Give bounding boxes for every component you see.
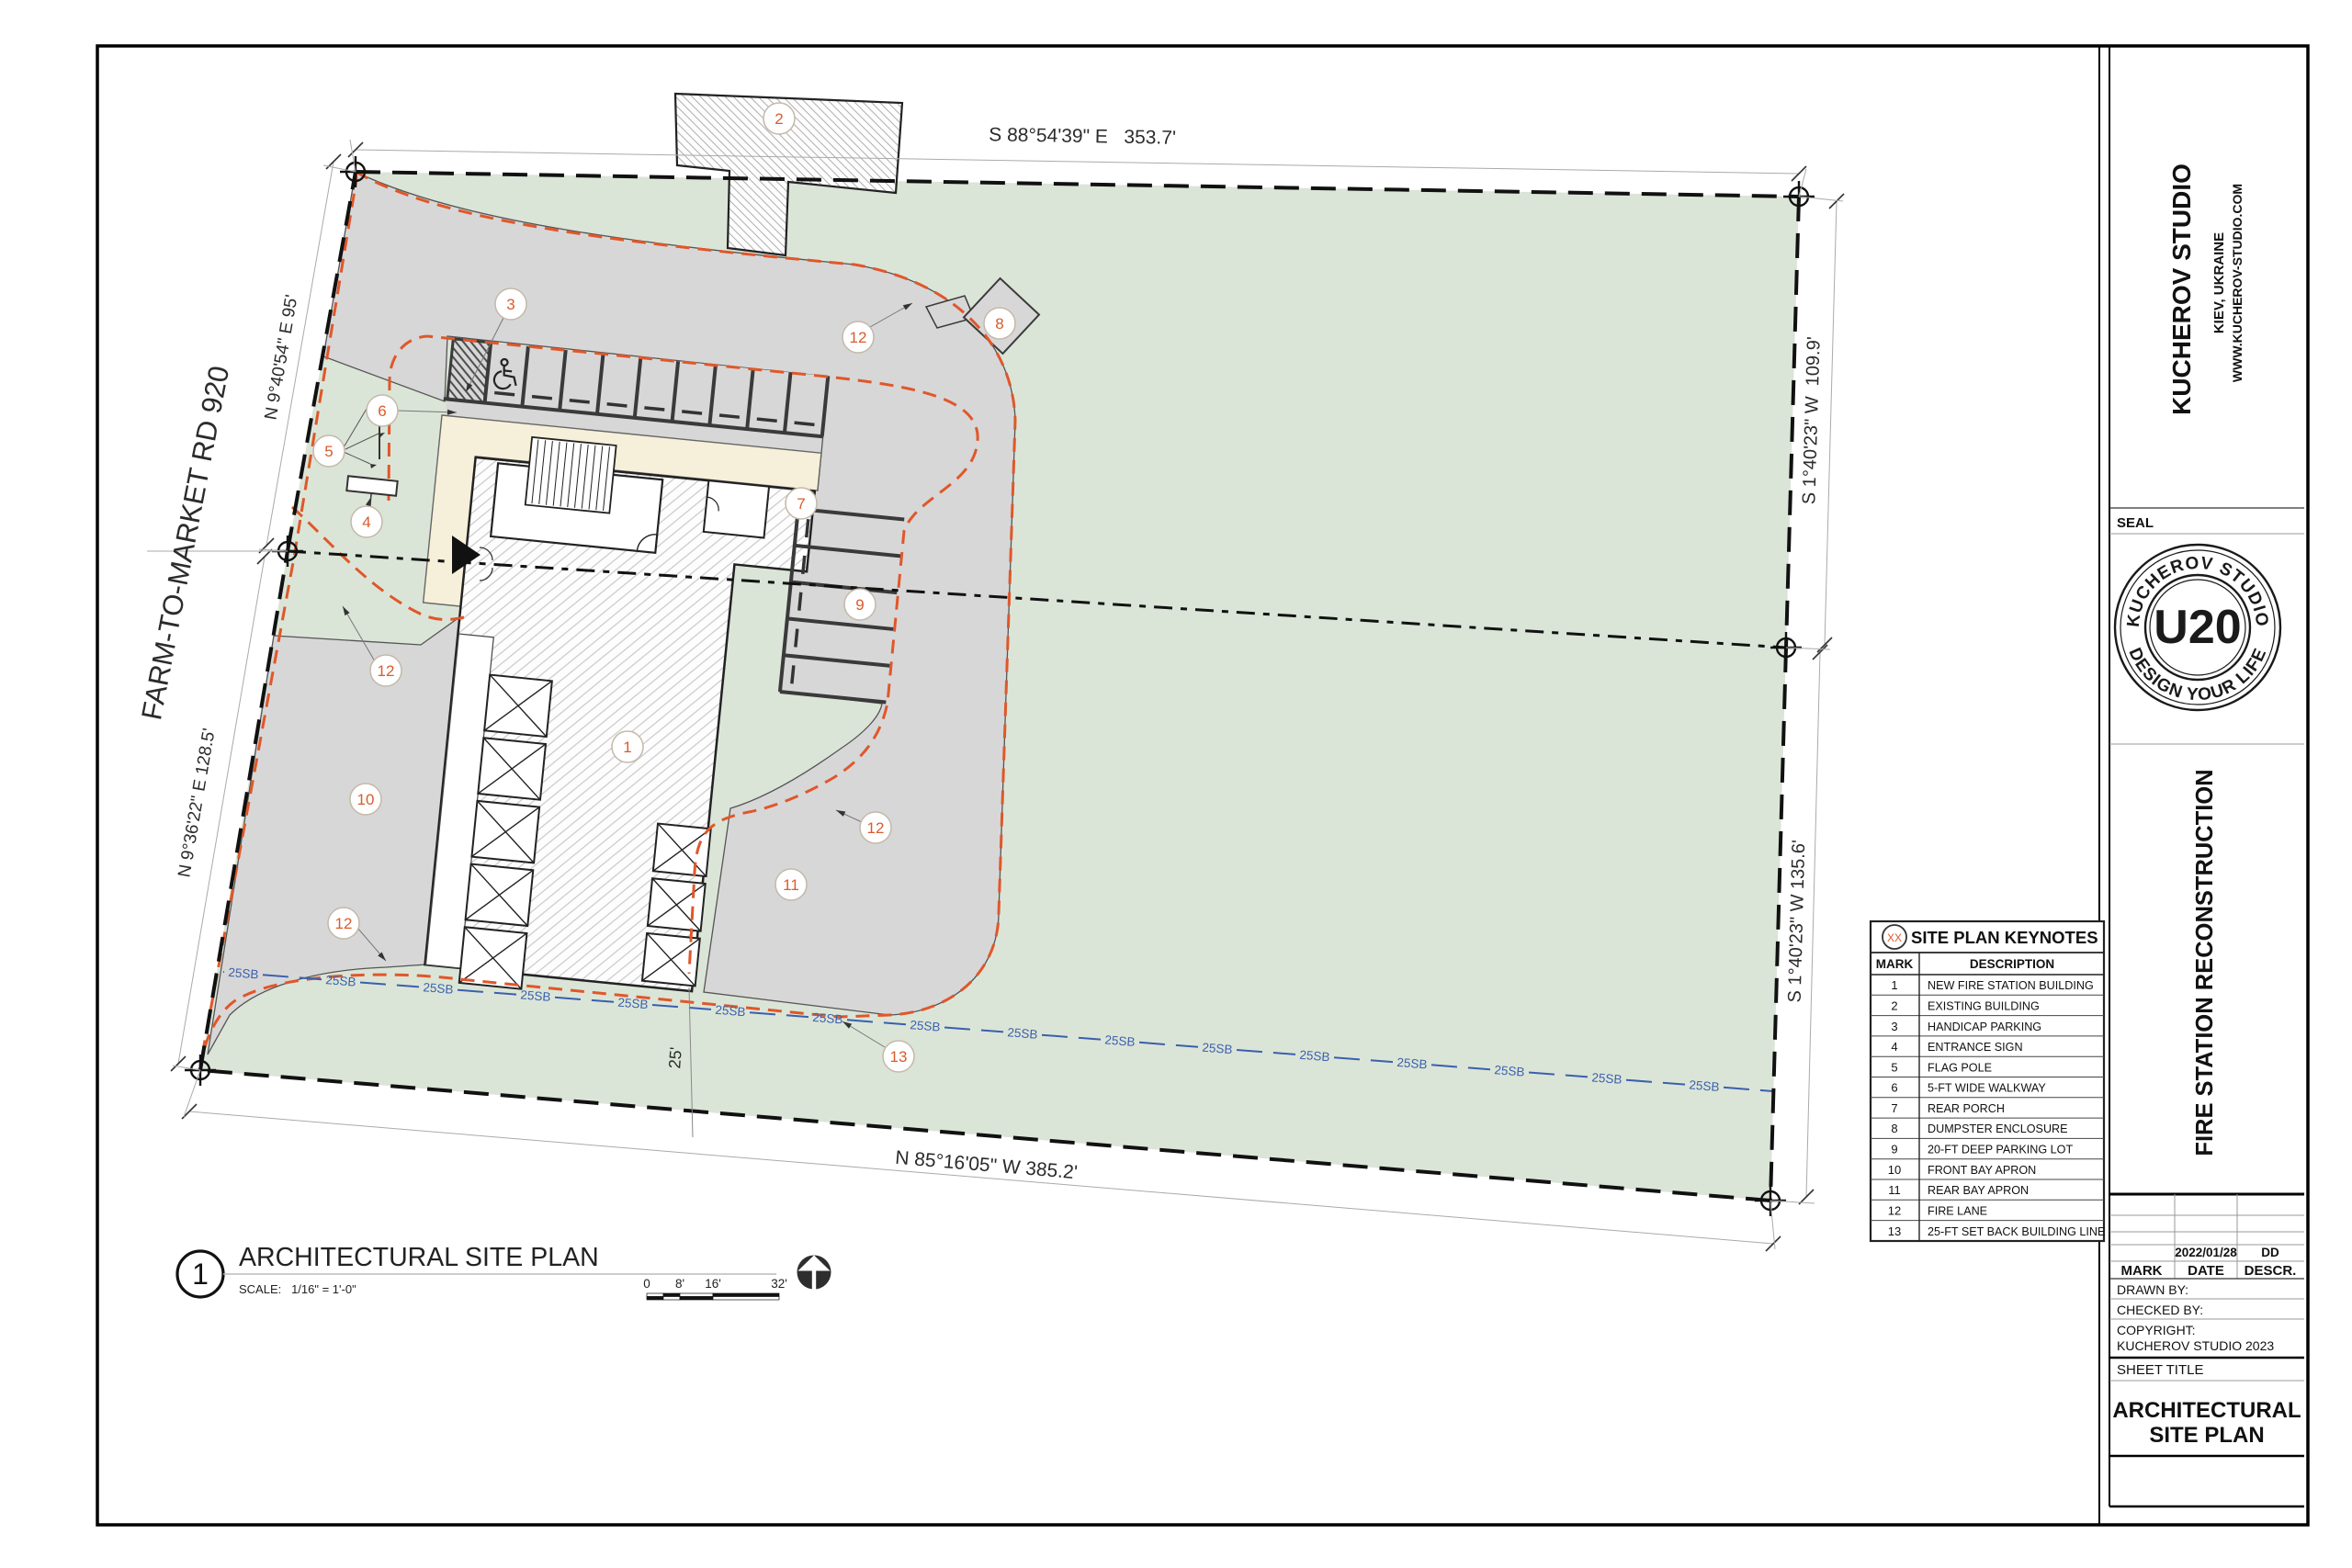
svg-text:6: 6 [1891, 1081, 1897, 1095]
svg-text:7: 7 [1891, 1101, 1897, 1115]
svg-text:KUCHEROV STUDIO 2023: KUCHEROV STUDIO 2023 [2117, 1338, 2274, 1353]
svg-text:32': 32' [771, 1277, 787, 1291]
svg-text:25SB: 25SB [715, 1003, 746, 1019]
svg-text:25SB: 25SB [1007, 1025, 1038, 1041]
svg-text:U20: U20 [2154, 601, 2241, 654]
svg-text:25': 25' [665, 1046, 685, 1069]
svg-text:DESCR.: DESCR. [2245, 1263, 2297, 1279]
svg-text:9: 9 [1891, 1143, 1897, 1156]
svg-text:5: 5 [324, 443, 333, 460]
svg-text:3: 3 [1891, 1020, 1897, 1033]
svg-text:DUMPSTER ENCLOSURE: DUMPSTER ENCLOSURE [1928, 1122, 2068, 1135]
svg-text:10: 10 [1888, 1163, 1901, 1177]
svg-text:SITE PLAN KEYNOTES: SITE PLAN KEYNOTES [1911, 928, 2098, 947]
svg-text:MARK: MARK [2121, 1263, 2163, 1279]
svg-text:25SB: 25SB [228, 965, 259, 981]
svg-text:MARK: MARK [1876, 957, 1914, 971]
svg-text:REAR PORCH: REAR PORCH [1928, 1102, 2005, 1115]
svg-text:3: 3 [506, 296, 514, 313]
svg-text:13: 13 [890, 1048, 908, 1066]
svg-text:25SB: 25SB [1396, 1055, 1428, 1071]
svg-text:6: 6 [378, 402, 386, 420]
svg-text:FIRE STATION RECONSTRUCTION: FIRE STATION RECONSTRUCTION [2192, 769, 2218, 1156]
svg-text:13: 13 [1888, 1224, 1901, 1238]
svg-text:KIEV, UKRAINE: KIEV, UKRAINE [2211, 232, 2227, 333]
svg-text:12: 12 [867, 819, 885, 837]
svg-text:25SB: 25SB [520, 987, 551, 1003]
svg-text:11: 11 [1888, 1183, 1901, 1197]
svg-text:CHECKED BY:: CHECKED BY: [2117, 1303, 2203, 1317]
svg-text:HANDICAP PARKING: HANDICAP PARKING [1928, 1021, 2041, 1033]
svg-text:SHEET TITLE: SHEET TITLE [2117, 1362, 2203, 1378]
svg-text:KUCHEROV STUDIO: KUCHEROV STUDIO [2167, 164, 2196, 415]
svg-text:2: 2 [775, 110, 783, 128]
svg-text:25SB: 25SB [617, 996, 649, 1011]
svg-text:SEAL: SEAL [2117, 515, 2154, 531]
svg-text:25SB: 25SB [1689, 1077, 1720, 1093]
svg-text:4: 4 [1891, 1040, 1897, 1054]
svg-text:4: 4 [362, 513, 370, 531]
svg-text:DATE: DATE [2188, 1263, 2224, 1279]
svg-text:12: 12 [335, 915, 353, 932]
svg-text:SCALE: 1/16" = 1'-0": SCALE: 1/16" = 1'-0" [239, 1282, 356, 1296]
svg-text:25SB: 25SB [1299, 1048, 1330, 1064]
svg-text:FRONT BAY APRON: FRONT BAY APRON [1928, 1164, 2036, 1177]
svg-text:DESCRIPTION: DESCRIPTION [1970, 957, 2054, 971]
svg-text:ENTRANCE SIGN: ENTRANCE SIGN [1928, 1041, 2023, 1054]
svg-text:EXISTING BUILDING: EXISTING BUILDING [1928, 1000, 2040, 1013]
svg-text:25SB: 25SB [1494, 1063, 1525, 1078]
svg-text:8: 8 [1891, 1122, 1897, 1135]
svg-text:FIRE LANE: FIRE LANE [1928, 1205, 1987, 1218]
svg-text:25SB: 25SB [910, 1018, 941, 1033]
svg-text:5: 5 [1891, 1060, 1897, 1074]
svg-text:XX: XX [1887, 931, 1902, 944]
svg-text:25SB: 25SB [1104, 1032, 1136, 1048]
svg-text:1: 1 [1891, 978, 1897, 992]
svg-text:REAR BAY APRON: REAR BAY APRON [1928, 1184, 2029, 1197]
svg-text:DD: DD [2261, 1246, 2279, 1259]
svg-text:9: 9 [855, 596, 864, 614]
svg-text:NEW FIRE STATION BUILDING: NEW FIRE STATION BUILDING [1928, 979, 2094, 992]
svg-text:25SB: 25SB [1202, 1041, 1233, 1056]
svg-text:5-FT WIDE WALKWAY: 5-FT WIDE WALKWAY [1928, 1082, 2046, 1095]
svg-text:DRAWN BY:: DRAWN BY: [2117, 1282, 2188, 1297]
svg-text:S 88°54'39" E 353.7': S 88°54'39" E 353.7' [989, 124, 1176, 149]
svg-text:20-FT DEEP PARKING LOT: 20-FT DEEP PARKING LOT [1928, 1144, 2073, 1156]
svg-text:S 1°40'23" W 135.6': S 1°40'23" W 135.6' [1785, 840, 1810, 1003]
svg-text:16': 16' [705, 1277, 721, 1291]
svg-text:25SB: 25SB [423, 980, 454, 996]
svg-text:ARCHITECTURAL: ARCHITECTURAL [2112, 1398, 2301, 1423]
svg-text:25SB: 25SB [1591, 1070, 1623, 1086]
svg-text:10: 10 [357, 791, 375, 808]
svg-text:SITE PLAN: SITE PLAN [2149, 1423, 2264, 1448]
svg-text:WWW.KUCHEROV-STUDIO.COM: WWW.KUCHEROV-STUDIO.COM [2230, 184, 2245, 382]
svg-text:12: 12 [1888, 1204, 1901, 1218]
svg-text:1: 1 [192, 1258, 209, 1291]
svg-text:2022/01/28: 2022/01/28 [2175, 1246, 2237, 1259]
svg-text:8: 8 [995, 315, 1003, 333]
svg-text:0: 0 [643, 1277, 650, 1291]
svg-text:12: 12 [850, 329, 867, 346]
svg-text:ARCHITECTURAL SITE PLAN: ARCHITECTURAL SITE PLAN [239, 1243, 599, 1272]
svg-text:12: 12 [378, 662, 395, 680]
svg-text:2: 2 [1891, 999, 1897, 1013]
svg-text:FLAG POLE: FLAG POLE [1928, 1061, 1992, 1074]
svg-text:25SB: 25SB [812, 1010, 843, 1026]
svg-text:25SB: 25SB [325, 973, 356, 988]
svg-text:1: 1 [623, 739, 631, 756]
svg-text:11: 11 [783, 876, 799, 894]
svg-text:COPYRIGHT:: COPYRIGHT: [2117, 1323, 2196, 1337]
svg-text:7: 7 [797, 495, 805, 513]
svg-text:8': 8' [675, 1277, 684, 1291]
svg-text:25-FT SET BACK BUILDING LINE: 25-FT SET BACK BUILDING LINE [1928, 1225, 2105, 1238]
